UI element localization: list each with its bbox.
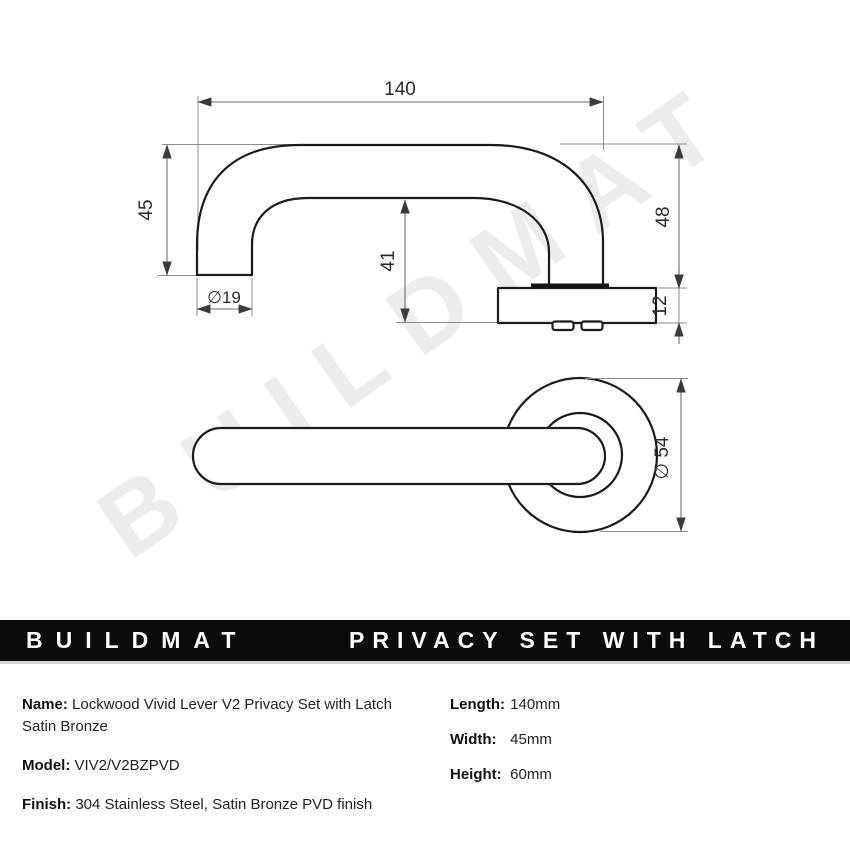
spec-name-label: Name: (22, 696, 68, 713)
spec-width-value: 45mm (510, 731, 552, 748)
spec-name-value: Lockwood Vivid Lever V2 Privacy Set with… (22, 696, 392, 735)
dim-length-label: 140 (384, 79, 416, 100)
spec-model-label: Model: (22, 757, 70, 774)
rose-side-profile (498, 288, 656, 323)
side-view: 140 45 ∅19 41 48 12 (136, 79, 687, 344)
spec-length-value: 140mm (510, 696, 560, 713)
spec-section: Name: Lockwood Vivid Lever V2 Privacy Se… (0, 694, 850, 833)
fixing-lug-left (553, 322, 574, 331)
spec-model-row: Model: VIV2/V2BZPVD (22, 755, 423, 777)
spec-finish-label: Finish: (22, 796, 71, 813)
spec-height-row: Height: 60mm (450, 764, 560, 786)
dim-grip-diameter-label: ∅19 (207, 288, 241, 307)
fixing-lug-right (582, 322, 603, 331)
front-view: ∅ 54 (193, 378, 688, 532)
lever-rose-junction (531, 284, 609, 289)
spec-model-value: VIV2/V2BZPVD (75, 757, 180, 774)
product-category-title: PRIVACY SET WITH LATCH (349, 627, 824, 654)
spec-width-row: Width: 45mm (450, 729, 560, 751)
brand-logo-text: BUILDMAT (26, 627, 248, 654)
spec-name-row: Name: Lockwood Vivid Lever V2 Privacy Se… (22, 694, 423, 738)
technical-drawing: 140 45 ∅19 41 48 12 ∅ 54 (0, 0, 850, 575)
spec-length-label: Length: (450, 694, 506, 716)
lever-outer-profile (197, 145, 603, 286)
spec-finish-row: Finish: 304 Stainless Steel, Satin Bronz… (22, 794, 423, 816)
lever-front-bar (193, 428, 605, 484)
title-banner: BUILDMAT PRIVACY SET WITH LATCH (0, 620, 850, 664)
spec-height-value: 60mm (510, 766, 552, 783)
dim-grip-height-label: 45 (136, 199, 157, 220)
dim-total-height-label: 48 (653, 206, 674, 227)
spec-column-left: Name: Lockwood Vivid Lever V2 Privacy Se… (0, 694, 435, 833)
spec-length-row: Length: 140mm (450, 694, 560, 716)
dim-neck-height-label: 41 (378, 250, 399, 271)
spec-column-right: Length: 140mm Width: 45mm Height: 60mm (435, 694, 560, 833)
dim-rose-depth-label: 12 (650, 295, 671, 316)
spec-height-label: Height: (450, 764, 506, 786)
spec-sheet: BUILDMAT (0, 0, 850, 850)
lever-inner-profile (252, 198, 549, 286)
spec-finish-value: 304 Stainless Steel, Satin Bronze PVD fi… (75, 796, 372, 813)
dim-rose-diameter-label: ∅ 54 (652, 436, 673, 479)
spec-width-label: Width: (450, 729, 506, 751)
